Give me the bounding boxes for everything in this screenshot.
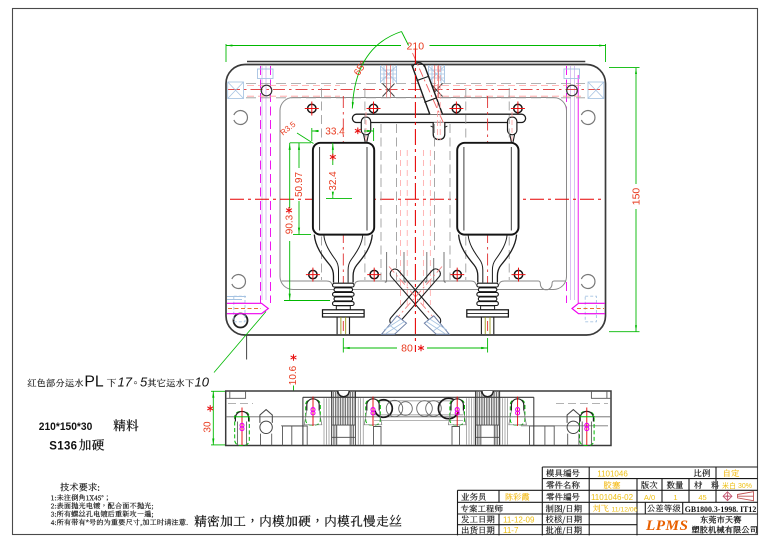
svg-text:S136: S136 — [49, 441, 77, 453]
svg-text:80: 80 — [401, 343, 413, 355]
svg-text:PL: PL — [84, 373, 104, 390]
svg-text:1: 1 — [673, 493, 677, 502]
svg-text:17: 17 — [118, 374, 133, 389]
svg-text:32.4: 32.4 — [328, 171, 339, 191]
svg-text:90.3: 90.3 — [285, 214, 296, 234]
svg-text:33.4: 33.4 — [325, 126, 345, 137]
svg-text:1101046-02: 1101046-02 — [591, 493, 634, 502]
svg-text:150: 150 — [631, 188, 643, 206]
svg-text:11-12-09: 11-12-09 — [503, 515, 535, 524]
svg-text:11/12/06: 11/12/06 — [612, 507, 638, 514]
svg-text:45: 45 — [698, 493, 706, 502]
svg-text:GB1800.3-1998. IT12: GB1800.3-1998. IT12 — [685, 504, 757, 514]
svg-text:A/0: A/0 — [644, 493, 655, 502]
svg-text:米白 30%: 米白 30% — [722, 481, 752, 490]
svg-text:30: 30 — [202, 421, 213, 433]
svg-text:10.6: 10.6 — [288, 365, 299, 385]
svg-text:5: 5 — [140, 374, 148, 389]
svg-text:50.97: 50.97 — [294, 172, 305, 197]
svg-text:LPMS: LPMS — [645, 517, 689, 534]
svg-text:210: 210 — [407, 40, 425, 52]
svg-text:11-7: 11-7 — [503, 526, 519, 535]
svg-text:210*150*30: 210*150*30 — [39, 421, 93, 433]
svg-text:1101046: 1101046 — [597, 469, 628, 478]
svg-text:10: 10 — [195, 374, 210, 389]
